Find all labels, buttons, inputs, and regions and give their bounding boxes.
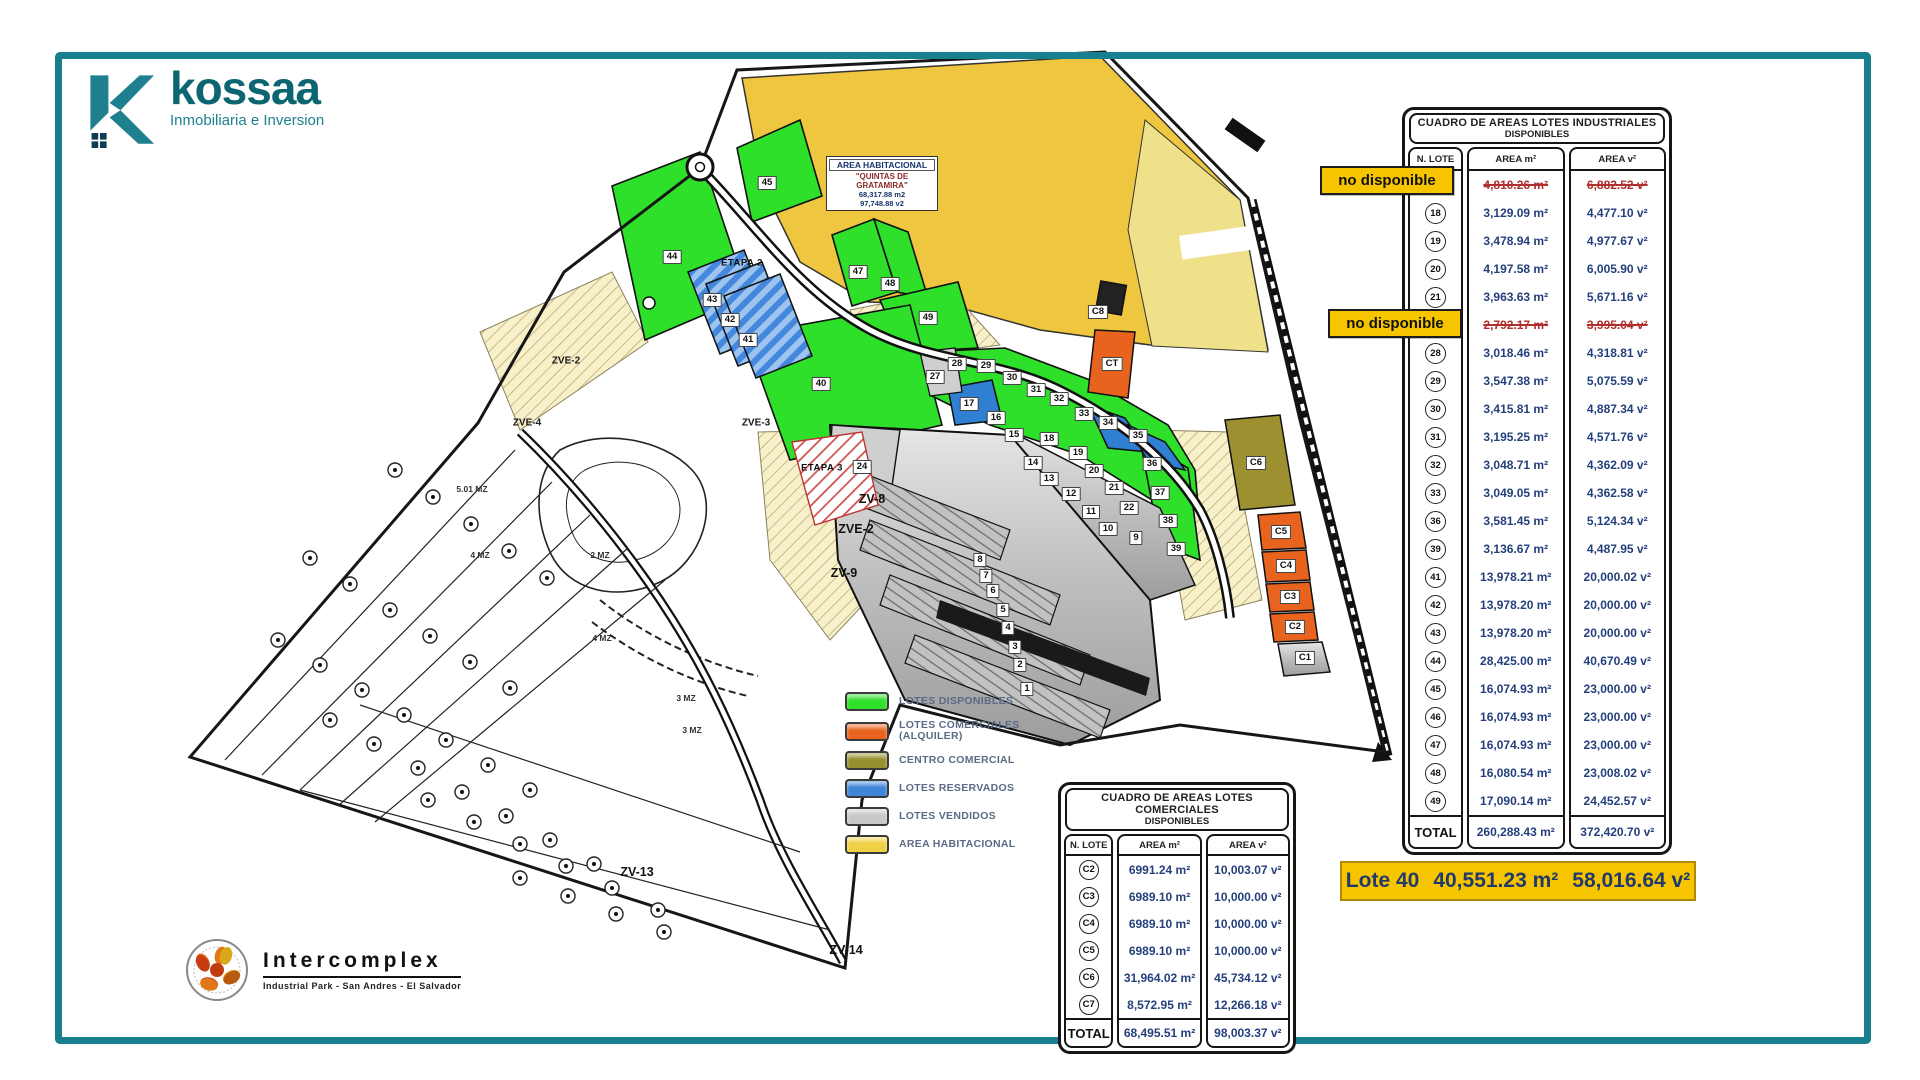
map-lot-label: 4 xyxy=(1001,621,1014,635)
map-lot-label: C8 xyxy=(1088,305,1108,319)
lot-number-badge: 28 xyxy=(1425,343,1446,364)
map-zone-label: ZV-14 xyxy=(829,943,862,957)
lot-number-cell: C6 xyxy=(1066,964,1111,991)
intercomplex-logo: Intercomplex Industrial Park - San Andre… xyxy=(185,938,461,1002)
lot-number-cell: 33 xyxy=(1410,479,1461,507)
map-lot-label: 21 xyxy=(1105,481,1124,495)
map-area-size-label: 4 MZ xyxy=(592,633,611,643)
table-column: N. LOTE181920212829303132333639414243444… xyxy=(1408,147,1463,849)
lot-number-cell: 49 xyxy=(1410,787,1461,815)
map-lot-label: 35 xyxy=(1129,429,1148,443)
legend-item: LOTES DISPONIBLES xyxy=(845,692,1020,711)
lot-number-badge: C5 xyxy=(1079,941,1099,961)
lot-number-badge: C2 xyxy=(1079,860,1099,880)
map-lot-label: 10 xyxy=(1099,522,1118,536)
area-habitacional-label: AREA HABITACIONAL "QUINTAS DE GRATAMIRA"… xyxy=(826,156,938,211)
column-header: N. LOTE xyxy=(1066,836,1111,856)
lot-number-badge: 42 xyxy=(1425,595,1446,616)
area-value-cell: 40,670.49 v² xyxy=(1571,647,1665,675)
map-lot-label: 37 xyxy=(1151,486,1170,500)
kossaa-logo-icon xyxy=(82,66,154,158)
page: kossaa Inmobiliaria e Inversion AREA HAB… xyxy=(0,0,1920,1080)
area-value-cell: 5,075.59 v² xyxy=(1571,367,1665,395)
area-value-cell: 45,734.12 v² xyxy=(1208,964,1288,991)
area-value-cell: 3,049.05 m² xyxy=(1469,479,1563,507)
area-value-cell: 31,964.02 m² xyxy=(1119,964,1199,991)
legend-swatch xyxy=(845,835,889,854)
area-value-cell: 3,963.63 m² xyxy=(1469,283,1563,311)
area-box-line1: "QUINTAS DE xyxy=(828,172,936,181)
legend-label: AREA HABITACIONAL xyxy=(899,839,1016,850)
lot-number-badge: 33 xyxy=(1425,483,1446,504)
area-value-cell: 6989.10 m² xyxy=(1119,910,1199,937)
area-value-cell: 3,581.45 m² xyxy=(1469,507,1563,535)
lote-40-area-m2: 40,551.23 m² xyxy=(1433,869,1558,893)
lot-number-cell: 46 xyxy=(1410,703,1461,731)
area-value-cell: 4,362.58 v² xyxy=(1571,479,1665,507)
map-lot-label: 14 xyxy=(1024,456,1043,470)
intercomplex-emblem-icon xyxy=(185,938,249,1002)
no-disponible-tag-2: no disponible xyxy=(1328,309,1462,338)
legend-swatch xyxy=(845,807,889,826)
legend-item: LOTES RESERVADOS xyxy=(845,779,1020,798)
map-lot-label: 13 xyxy=(1040,472,1059,486)
area-box-m2: 68,317.88 m2 xyxy=(828,190,936,199)
legend-label: LOTES VENDIDOS xyxy=(899,811,996,822)
map-lot-label: 31 xyxy=(1027,383,1046,397)
total-value: 260,288.43 m² xyxy=(1469,815,1563,847)
area-box-title: AREA HABITACIONAL xyxy=(829,159,935,171)
legend-item: AREA HABITACIONAL xyxy=(845,835,1020,854)
map-lot-label: 32 xyxy=(1050,392,1069,406)
area-value-cell: 24,452.57 v² xyxy=(1571,787,1665,815)
map-lot-label: 11 xyxy=(1082,505,1100,519)
area-value-cell: 8,572.95 m² xyxy=(1119,991,1199,1018)
legend-swatch xyxy=(845,779,889,798)
map-lot-label: 28 xyxy=(948,357,967,371)
lot-number-cell: 44 xyxy=(1410,647,1461,675)
area-box-v2: 97,748.88 v2 xyxy=(828,199,936,208)
area-value-cell: 23,000.00 v² xyxy=(1571,703,1665,731)
map-lot-label: 16 xyxy=(987,411,1006,425)
lot-number-cell: C7 xyxy=(1066,991,1111,1018)
area-value-cell: 3,048.71 m² xyxy=(1469,451,1563,479)
area-value-cell: 10,000.00 v² xyxy=(1208,883,1288,910)
area-value-cell: 4,887.34 v² xyxy=(1571,395,1665,423)
lot-number-cell: C2 xyxy=(1066,856,1111,883)
lot-number-badge: 29 xyxy=(1425,371,1446,392)
area-value-cell: 16,074.93 m² xyxy=(1469,703,1563,731)
lot-number-badge: C4 xyxy=(1079,914,1099,934)
lot-number-cell: 43 xyxy=(1410,619,1461,647)
legend-item: LOTES COMERCIALES(ALQUILER) xyxy=(845,720,1020,742)
lot-number-cell: 39 xyxy=(1410,535,1461,563)
lot-number-cell: C5 xyxy=(1066,937,1111,964)
lot-number-badge: 43 xyxy=(1425,623,1446,644)
column-header: AREA v² xyxy=(1208,836,1288,856)
column-header: AREA m² xyxy=(1119,836,1199,856)
area-value-cell: 20,000.02 v² xyxy=(1571,563,1665,591)
map-lot-label: 33 xyxy=(1075,407,1094,421)
lot-number-cell: 32 xyxy=(1410,451,1461,479)
lot-number-badge: 48 xyxy=(1425,763,1446,784)
area-value-cell: 13,978.20 m² xyxy=(1469,619,1563,647)
area-value-cell: 6,882.52 v² xyxy=(1571,171,1665,199)
lot-number-badge: 21 xyxy=(1425,287,1446,308)
area-value-cell: 5,671.16 v² xyxy=(1571,283,1665,311)
map-lot-label: 3 xyxy=(1008,640,1021,654)
lot-number-cell: 48 xyxy=(1410,759,1461,787)
map-area-size-label: 3 MZ xyxy=(676,693,695,703)
map-lot-label: 5 xyxy=(996,603,1009,617)
area-value-cell: 5,124.34 v² xyxy=(1571,507,1665,535)
map-lot-label: C5 xyxy=(1271,525,1291,539)
map-lot-label: 20 xyxy=(1085,464,1104,478)
map-lot-label: 19 xyxy=(1069,446,1088,460)
map-lot-label: 29 xyxy=(977,359,996,373)
map-lot-label: 38 xyxy=(1159,514,1178,528)
legend-item: LOTES VENDIDOS xyxy=(845,807,1020,826)
area-value-cell: 3,136.67 m² xyxy=(1469,535,1563,563)
area-value-cell: 13,978.21 m² xyxy=(1469,563,1563,591)
legend-label: LOTES RESERVADOS xyxy=(899,783,1014,794)
area-value-cell: 12,266.18 v² xyxy=(1208,991,1288,1018)
map-lot-label: 27 xyxy=(926,370,945,384)
area-value-cell: 28,425.00 m² xyxy=(1469,647,1563,675)
lot-number-cell: 47 xyxy=(1410,731,1461,759)
map-lot-label: 18 xyxy=(1040,432,1059,446)
legend-label: LOTES DISPONIBLES xyxy=(899,696,1013,707)
lot-number-badge: 36 xyxy=(1425,511,1446,532)
map-lot-label: 45 xyxy=(758,176,777,190)
area-value-cell: 17,090.14 m² xyxy=(1469,787,1563,815)
area-value-cell: 20,000.00 v² xyxy=(1571,619,1665,647)
map-lot-label: 41 xyxy=(739,333,758,347)
table-column: AREA m²4,810.26 m²3,129.09 m²3,478.94 m²… xyxy=(1467,147,1565,849)
lote-40-highlight: Lote 40 40,551.23 m² 58,016.64 v² xyxy=(1340,861,1696,901)
area-value-cell: 23,008.02 v² xyxy=(1571,759,1665,787)
column-header: AREA v² xyxy=(1571,149,1665,171)
intercomplex-name: Intercomplex xyxy=(263,949,461,978)
legend-label: CENTRO COMERCIAL xyxy=(899,755,1015,766)
area-value-cell: 6991.24 m² xyxy=(1119,856,1199,883)
lot-number-badge: 30 xyxy=(1425,399,1446,420)
column-header: AREA m² xyxy=(1469,149,1563,171)
lot-number-cell: 18 xyxy=(1410,199,1461,227)
lot-number-badge: 18 xyxy=(1425,203,1446,224)
total-value: 372,420.70 v² xyxy=(1571,815,1665,847)
total-value: 68,495.51 m² xyxy=(1119,1018,1199,1046)
area-value-cell: 3,415.81 m² xyxy=(1469,395,1563,423)
area-value-cell: 4,810.26 m² xyxy=(1469,171,1563,199)
map-lot-label: ETAPA 3 xyxy=(801,463,843,474)
lot-number-cell: 42 xyxy=(1410,591,1461,619)
map-lot-label: 36 xyxy=(1143,457,1162,471)
lote-40-label: Lote 40 xyxy=(1346,869,1420,893)
commercial-lots-table: CUADRO DE AREAS LOTES COMERCIALESDISPONI… xyxy=(1058,782,1296,1054)
lot-number-badge: 44 xyxy=(1425,651,1446,672)
lot-number-cell: 31 xyxy=(1410,423,1461,451)
map-legend: LOTES DISPONIBLESLOTES COMERCIALES(ALQUI… xyxy=(845,692,1020,854)
map-lot-label: C6 xyxy=(1246,456,1266,470)
lot-number-badge: 32 xyxy=(1425,455,1446,476)
area-value-cell: 3,129.09 m² xyxy=(1469,199,1563,227)
area-value-cell: 23,000.00 v² xyxy=(1571,731,1665,759)
no-disponible-tag-1: no disponible xyxy=(1320,166,1454,195)
map-lot-label: 1 xyxy=(1020,682,1033,696)
lot-number-cell: 45 xyxy=(1410,675,1461,703)
legend-item: CENTRO COMERCIAL xyxy=(845,751,1020,770)
map-lot-label: 6 xyxy=(986,584,999,598)
area-value-cell: 3,547.38 m² xyxy=(1469,367,1563,395)
map-lot-label: 42 xyxy=(721,313,740,327)
area-value-cell: 4,318.81 v² xyxy=(1571,339,1665,367)
area-value-cell: 3,018.46 m² xyxy=(1469,339,1563,367)
table-column: AREA v²10,003.07 v²10,000.00 v²10,000.00… xyxy=(1206,834,1290,1048)
map-lot-label: 30 xyxy=(1003,371,1022,385)
map-lot-label: 8 xyxy=(973,553,986,567)
lot-number-badge: C7 xyxy=(1079,995,1099,1015)
map-lot-label: 15 xyxy=(1005,428,1024,442)
lot-number-badge: 19 xyxy=(1425,231,1446,252)
map-lot-label: 34 xyxy=(1099,416,1118,430)
map-lot-label: 24 xyxy=(853,460,872,474)
map-area-size-label: 2 MZ xyxy=(590,550,609,560)
lot-number-badge: 20 xyxy=(1425,259,1446,280)
intercomplex-tagline: Industrial Park - San Andres - El Salvad… xyxy=(263,981,461,991)
lot-number-cell: 19 xyxy=(1410,227,1461,255)
total-label: TOTAL xyxy=(1066,1018,1111,1046)
lot-number-badge: 47 xyxy=(1425,735,1446,756)
area-value-cell: 4,487.95 v² xyxy=(1571,535,1665,563)
map-lot-label: 47 xyxy=(849,265,868,279)
lot-number-cell: C3 xyxy=(1066,883,1111,910)
lot-number-badge: 41 xyxy=(1425,567,1446,588)
lot-number-badge: 31 xyxy=(1425,427,1446,448)
kossaa-logo: kossaa Inmobiliaria e Inversion xyxy=(82,66,324,158)
map-lot-label: C1 xyxy=(1295,651,1315,665)
table-column: AREA v²6,882.52 v²4,477.10 v²4,977.67 v²… xyxy=(1569,147,1667,849)
lot-number-badge: 49 xyxy=(1425,791,1446,812)
map-zone-label: ZV-13 xyxy=(620,865,653,879)
area-value-cell: 4,571.76 v² xyxy=(1571,423,1665,451)
map-lot-label: 40 xyxy=(812,377,831,391)
lote-40-area-v2: 58,016.64 v² xyxy=(1572,869,1690,893)
brand-name: kossaa xyxy=(170,66,324,110)
area-value-cell: 6,005.90 v² xyxy=(1571,255,1665,283)
lot-number-cell: 20 xyxy=(1410,255,1461,283)
area-value-cell: 16,074.93 m² xyxy=(1469,731,1563,759)
brand-tagline: Inmobiliaria e Inversion xyxy=(170,112,324,129)
lot-number-cell: C4 xyxy=(1066,910,1111,937)
area-value-cell: 23,000.00 v² xyxy=(1571,675,1665,703)
map-zone-label: ZVE-2 xyxy=(838,522,873,536)
lot-number-cell: 28 xyxy=(1410,339,1461,367)
table-column: N. LOTEC2C3C4C5C6C7TOTAL xyxy=(1064,834,1113,1048)
lot-number-badge: 46 xyxy=(1425,707,1446,728)
area-value-cell: 4,197.58 m² xyxy=(1469,255,1563,283)
lot-number-cell: 36 xyxy=(1410,507,1461,535)
lot-number-cell: 30 xyxy=(1410,395,1461,423)
map-lot-label: 49 xyxy=(919,311,938,325)
area-value-cell: 10,003.07 v² xyxy=(1208,856,1288,883)
map-lot-label: 22 xyxy=(1120,501,1139,515)
legend-swatch xyxy=(845,722,889,741)
map-area-size-label: 5.01 MZ xyxy=(456,484,487,494)
total-label: TOTAL xyxy=(1410,815,1461,847)
map-zone-label: ZVE-3 xyxy=(742,418,770,429)
area-value-cell: 3,995.04 v² xyxy=(1571,311,1665,339)
area-box-line2: GRATAMIRA" xyxy=(828,181,936,190)
lot-number-badge: 39 xyxy=(1425,539,1446,560)
map-lot-label: 44 xyxy=(663,250,682,264)
map-lot-label: 48 xyxy=(881,277,900,291)
map-lot-label: ETAPA 2 xyxy=(721,258,763,269)
map-lot-label: 12 xyxy=(1062,487,1081,501)
map-area-size-label: 3 MZ xyxy=(682,725,701,735)
lot-number-badge: 45 xyxy=(1425,679,1446,700)
lot-number-cell: 41 xyxy=(1410,563,1461,591)
area-value-cell: 4,477.10 v² xyxy=(1571,199,1665,227)
area-value-cell: 10,000.00 v² xyxy=(1208,910,1288,937)
table-title: CUADRO DE AREAS LOTES COMERCIALESDISPONI… xyxy=(1065,788,1289,831)
map-lot-label: 7 xyxy=(979,569,992,583)
area-value-cell: 16,080.54 m² xyxy=(1469,759,1563,787)
total-value: 98,003.37 v² xyxy=(1208,1018,1288,1046)
area-value-cell: 16,074.93 m² xyxy=(1469,675,1563,703)
lot-number-cell: 21 xyxy=(1410,283,1461,311)
area-value-cell: 3,478.94 m² xyxy=(1469,227,1563,255)
legend-swatch xyxy=(845,751,889,770)
map-zone-label: ZVE-2 xyxy=(552,356,580,367)
map-lot-label: 39 xyxy=(1167,542,1186,556)
map-lot-label: C3 xyxy=(1280,590,1300,604)
map-zone-label: ZV-9 xyxy=(831,566,857,580)
table-column: AREA m²6991.24 m²6989.10 m²6989.10 m²698… xyxy=(1117,834,1201,1048)
area-value-cell: 4,977.67 v² xyxy=(1571,227,1665,255)
map-lot-label: 9 xyxy=(1129,531,1142,545)
map-lot-label: 2 xyxy=(1013,658,1026,672)
map-lot-label: 43 xyxy=(703,293,722,307)
map-area-size-label: 4 MZ xyxy=(470,550,489,560)
area-value-cell: 2,792.17 m² xyxy=(1469,311,1563,339)
lot-number-cell: 29 xyxy=(1410,367,1461,395)
area-value-cell: 13,978.20 m² xyxy=(1469,591,1563,619)
map-lot-label: C2 xyxy=(1285,620,1305,634)
legend-swatch xyxy=(845,692,889,711)
area-value-cell: 4,362.09 v² xyxy=(1571,451,1665,479)
industrial-lots-table: CUADRO DE AREAS LOTES INDUSTRIALESDISPON… xyxy=(1402,107,1672,855)
area-value-cell: 6989.10 m² xyxy=(1119,937,1199,964)
map-lot-label: C4 xyxy=(1276,559,1296,573)
map-lot-label: 17 xyxy=(960,397,979,411)
table-title: CUADRO DE AREAS LOTES INDUSTRIALESDISPON… xyxy=(1409,113,1665,144)
lot-number-badge: C6 xyxy=(1079,968,1099,988)
legend-label: LOTES COMERCIALES(ALQUILER) xyxy=(899,720,1020,742)
map-lot-label: CT xyxy=(1102,357,1123,371)
area-value-cell: 10,000.00 v² xyxy=(1208,937,1288,964)
area-value-cell: 20,000.00 v² xyxy=(1571,591,1665,619)
lot-number-badge: C3 xyxy=(1079,887,1099,907)
area-value-cell: 6989.10 m² xyxy=(1119,883,1199,910)
map-zone-label: ZV-8 xyxy=(859,492,885,506)
map-zone-label: ZVE-4 xyxy=(513,418,541,429)
area-value-cell: 3,195.25 m² xyxy=(1469,423,1563,451)
